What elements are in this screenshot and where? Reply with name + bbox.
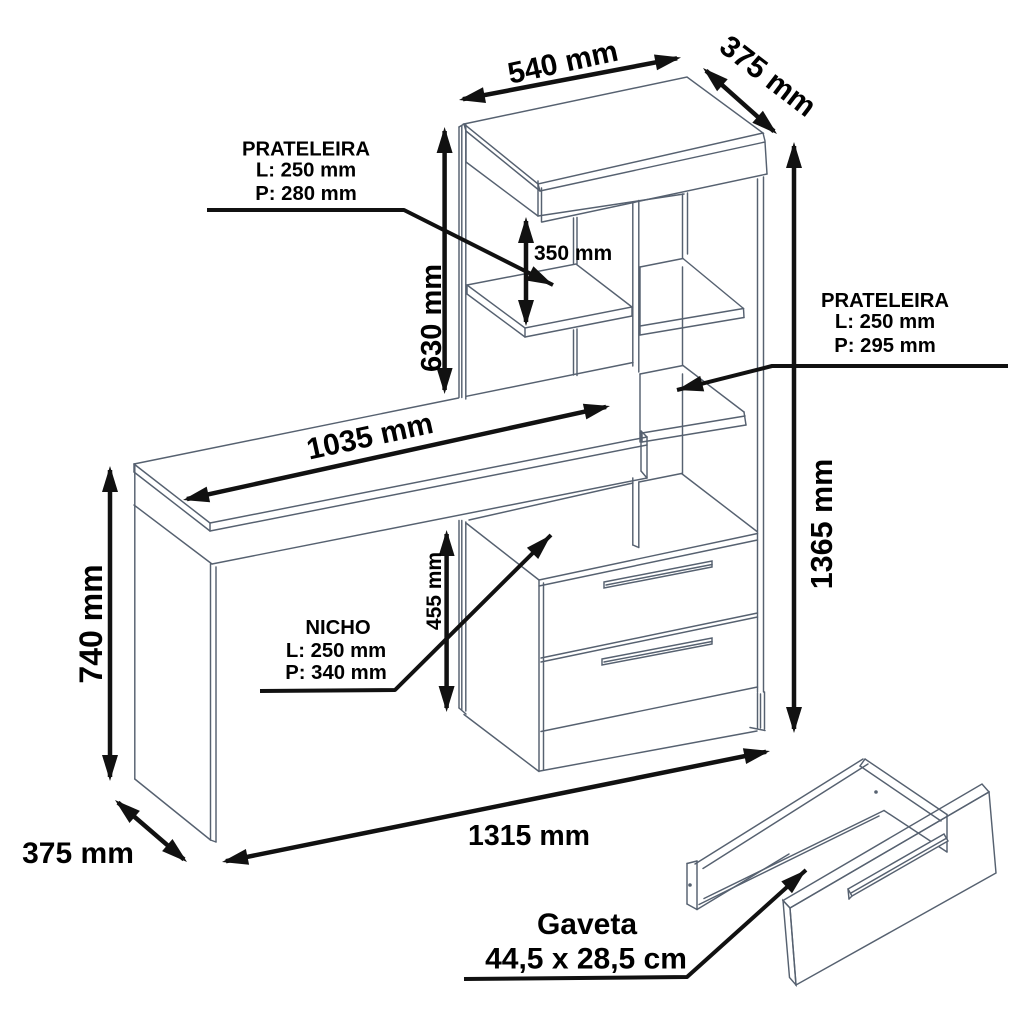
svg-text:1315 mm: 1315 mm	[468, 820, 590, 852]
svg-text:Gaveta: Gaveta	[537, 908, 637, 941]
svg-text:P: 340 mm: P: 340 mm	[285, 662, 386, 684]
svg-text:L: 250 mm: L: 250 mm	[286, 640, 386, 662]
svg-text:375 mm: 375 mm	[22, 837, 134, 870]
svg-text:L: 250 mm: L: 250 mm	[835, 311, 935, 333]
svg-text:P: 295 mm: P: 295 mm	[834, 335, 935, 357]
svg-text:NICHO: NICHO	[305, 617, 370, 639]
svg-text:630 mm: 630 mm	[416, 264, 448, 372]
svg-text:455 mm: 455 mm	[423, 552, 446, 630]
svg-text:P: 280 mm: P: 280 mm	[255, 183, 356, 205]
svg-text:PRATELEIRA: PRATELEIRA	[821, 290, 949, 312]
svg-text:PRATELEIRA: PRATELEIRA	[242, 139, 370, 161]
svg-text:350 mm: 350 mm	[534, 242, 612, 265]
svg-text:1365 mm: 1365 mm	[805, 459, 839, 590]
svg-text:740 mm: 740 mm	[73, 564, 109, 683]
svg-text:44,5 x 28,5 cm: 44,5 x 28,5 cm	[485, 943, 687, 976]
svg-text:L: 250 mm: L: 250 mm	[256, 160, 356, 182]
